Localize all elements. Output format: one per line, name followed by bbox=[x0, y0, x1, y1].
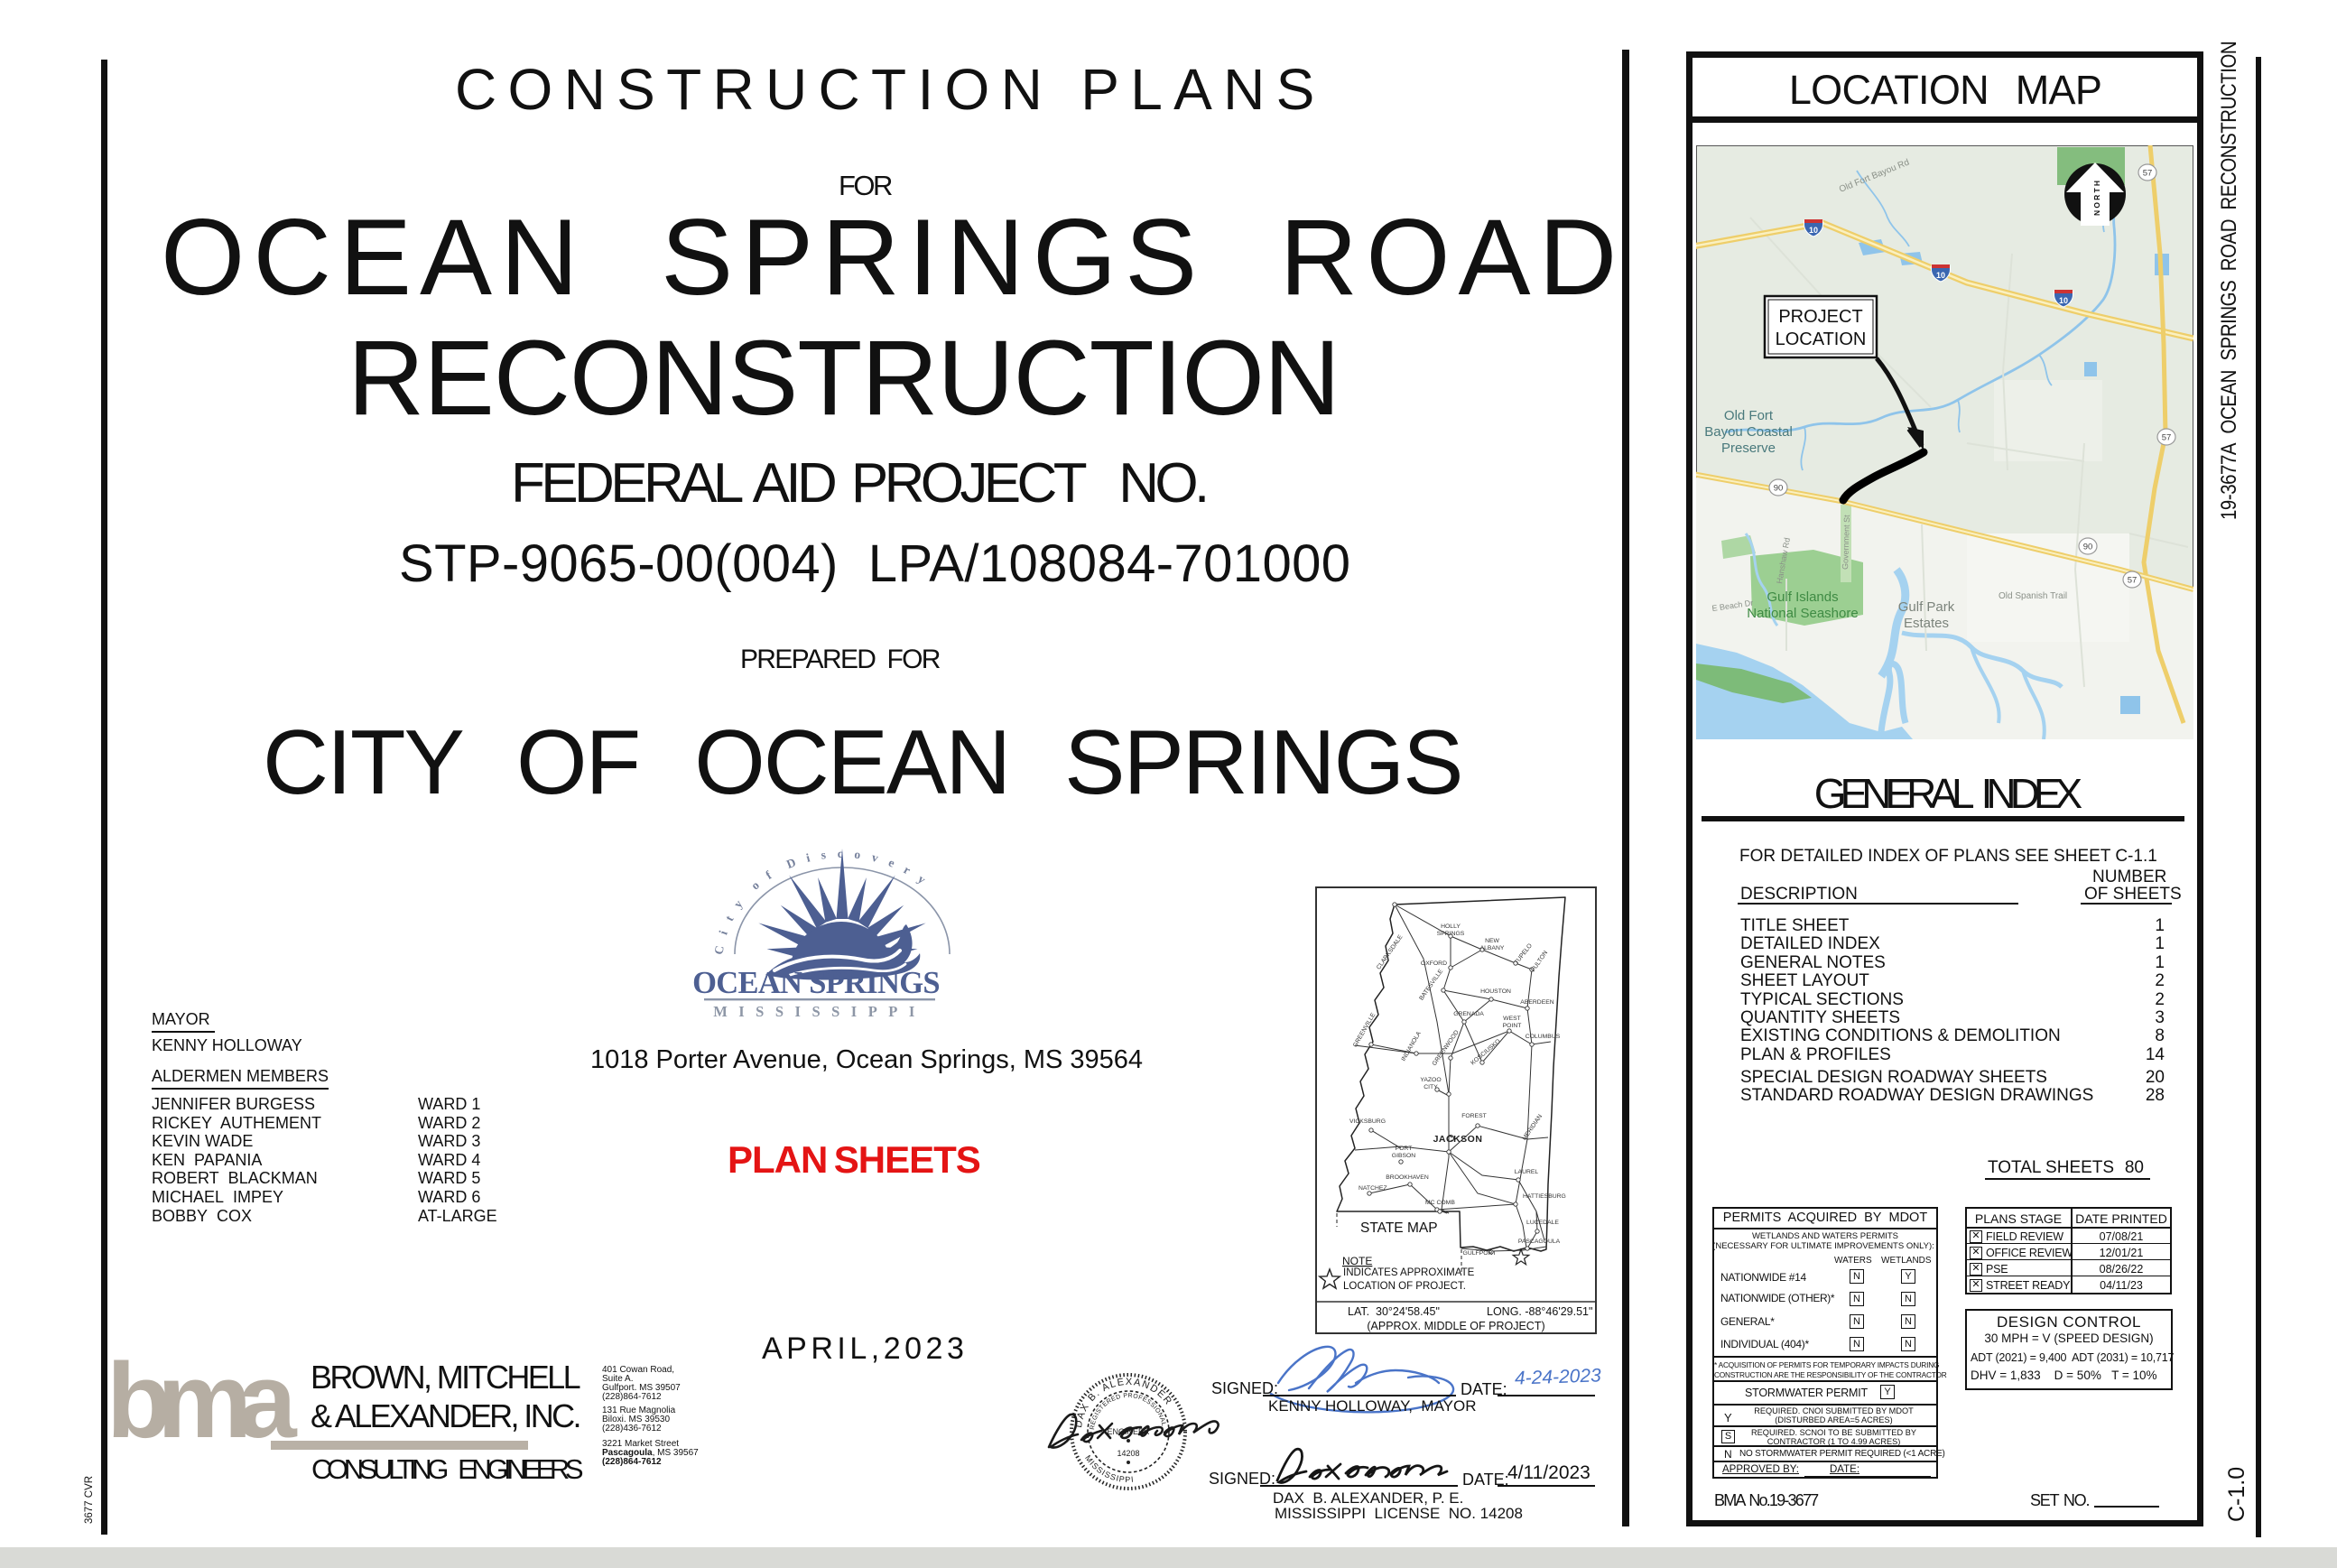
svg-text:INDICATES APPROXIMATE: INDICATES APPROXIMATE bbox=[1343, 1267, 1475, 1278]
svg-text:ALBANY: ALBANY bbox=[1480, 945, 1505, 951]
svg-text:HATTIESBURG: HATTIESBURG bbox=[1523, 1193, 1566, 1200]
svg-text:90: 90 bbox=[1774, 484, 1784, 494]
svg-text:(APPROX. MIDDLE OF PROJECT): (APPROX. MIDDLE OF PROJECT) bbox=[1367, 1320, 1544, 1332]
svg-text:National Seashore: National Seashore bbox=[1747, 606, 1858, 621]
svg-text:57: 57 bbox=[2143, 169, 2153, 179]
svg-text:VICKSBURG: VICKSBURG bbox=[1349, 1118, 1386, 1125]
svg-text:YAZOO: YAZOO bbox=[1420, 1077, 1441, 1083]
svg-text:NEW: NEW bbox=[1485, 938, 1499, 944]
svg-text:PORT: PORT bbox=[1396, 1146, 1413, 1152]
svg-text:WEST: WEST bbox=[1503, 1016, 1521, 1022]
svg-text:POINT: POINT bbox=[1503, 1023, 1522, 1029]
svg-text:Preserve: Preserve bbox=[1721, 441, 1776, 456]
svg-text:10: 10 bbox=[1809, 226, 1818, 235]
svg-text:NATCHEZ: NATCHEZ bbox=[1359, 1185, 1387, 1192]
svg-text:GULFPORT: GULFPORT bbox=[1463, 1250, 1497, 1257]
svg-text:HOUSTON: HOUSTON bbox=[1480, 988, 1511, 995]
svg-text:LOCATION OF PROJECT.: LOCATION OF PROJECT. bbox=[1343, 1281, 1466, 1292]
svg-text:LAT. 30°24'58.45": LAT. 30°24'58.45" bbox=[1348, 1305, 1440, 1318]
svg-text:Old Spanish Trail: Old Spanish Trail bbox=[1999, 591, 2067, 601]
svg-text:PASCAGOULA: PASCAGOULA bbox=[1518, 1239, 1561, 1245]
svg-text:10: 10 bbox=[2059, 296, 2068, 305]
svg-text:GIBSON: GIBSON bbox=[1392, 1153, 1416, 1159]
svg-text:LONG. -88°46'29.51": LONG. -88°46'29.51" bbox=[1487, 1305, 1592, 1318]
svg-text:LUCEDALE: LUCEDALE bbox=[1526, 1220, 1559, 1226]
svg-text:Government St: Government St bbox=[1841, 515, 1851, 570]
svg-text:HOLLY: HOLLY bbox=[1441, 923, 1461, 930]
svg-text:PROJECT: PROJECT bbox=[1778, 307, 1862, 327]
svg-text:Bayou Coastal: Bayou Coastal bbox=[1704, 424, 1793, 440]
svg-text:STATE MAP: STATE MAP bbox=[1360, 1220, 1438, 1236]
svg-text:COLUMBUS: COLUMBUS bbox=[1526, 1034, 1561, 1040]
svg-text:57: 57 bbox=[2128, 576, 2138, 586]
svg-text:ABERDEEN: ABERDEEN bbox=[1520, 999, 1553, 1006]
svg-text:Gulf Islands: Gulf Islands bbox=[1767, 589, 1838, 605]
svg-text:10: 10 bbox=[1936, 271, 1945, 280]
svg-text:GRENADA: GRENADA bbox=[1453, 1011, 1484, 1017]
svg-text:90: 90 bbox=[2083, 543, 2093, 552]
svg-text:SPRINGS: SPRINGS bbox=[1437, 931, 1465, 937]
svg-text:Old Fort: Old Fort bbox=[1724, 408, 1774, 423]
svg-text:OCEAN SPRINGS: OCEAN SPRINGS bbox=[692, 966, 940, 1000]
svg-text:NORTH: NORTH bbox=[2092, 179, 2101, 216]
svg-text:JACKSON: JACKSON bbox=[1433, 1134, 1483, 1145]
svg-text:Gulf Park: Gulf Park bbox=[1898, 599, 1955, 615]
svg-text:Estates: Estates bbox=[1904, 616, 1949, 631]
svg-text:BROOKHAVEN: BROOKHAVEN bbox=[1386, 1174, 1429, 1181]
svg-text:CITY: CITY bbox=[1424, 1084, 1438, 1090]
svg-text:57: 57 bbox=[2162, 433, 2172, 443]
svg-text:NOTE: NOTE bbox=[1342, 1255, 1372, 1267]
svg-text:FOREST: FOREST bbox=[1461, 1113, 1487, 1119]
svg-text:MISSISSIPPI: MISSISSIPPI bbox=[713, 1003, 926, 1020]
svg-text:OXFORD: OXFORD bbox=[1421, 960, 1447, 967]
svg-text:LAUREL: LAUREL bbox=[1515, 1169, 1539, 1175]
svg-text:MC COMB: MC COMB bbox=[1425, 1200, 1455, 1206]
svg-text:LOCATION: LOCATION bbox=[1776, 329, 1867, 349]
